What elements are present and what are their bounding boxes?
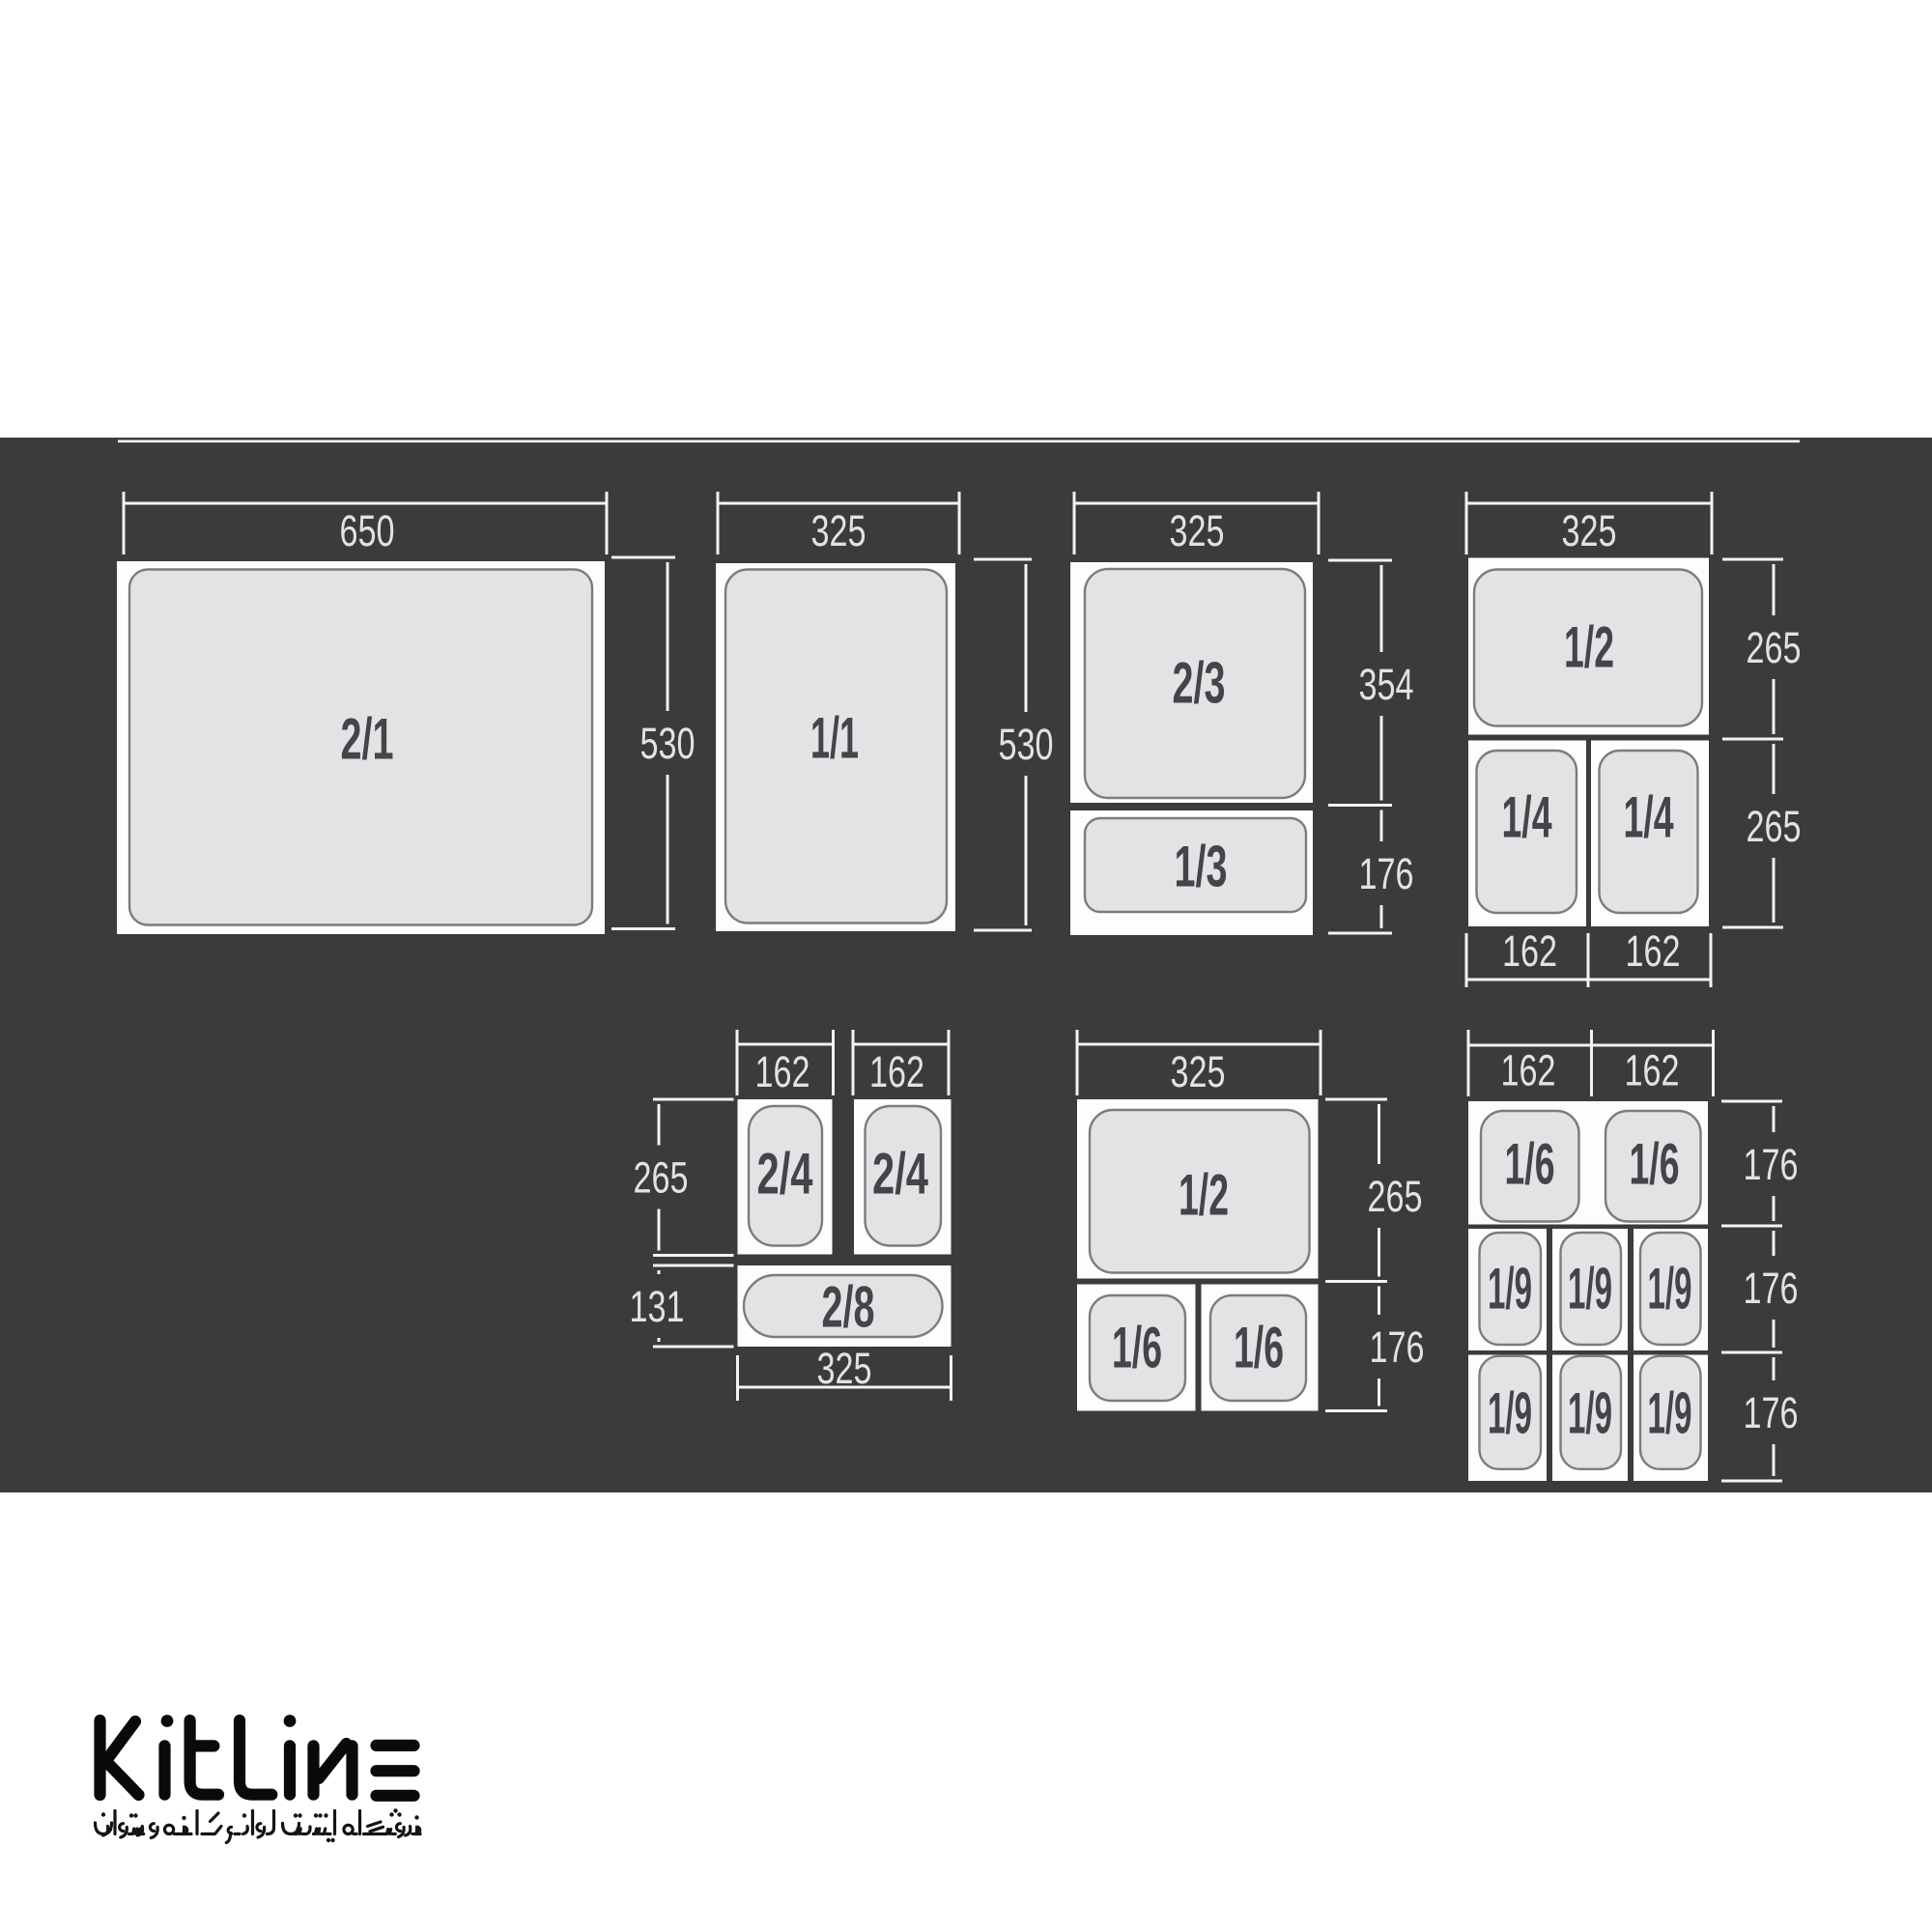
svg-text:1/1: 1/1 [810,706,859,771]
svg-text:1/9: 1/9 [1568,1257,1612,1321]
svg-text:325: 325 [1562,506,1617,555]
svg-text:1/9: 1/9 [1488,1381,1532,1446]
svg-text:265: 265 [1747,623,1802,672]
svg-text:325: 325 [1171,1047,1226,1096]
svg-text:1/3: 1/3 [1175,835,1228,899]
svg-text:2/8: 2/8 [822,1275,875,1340]
svg-text:176: 176 [1744,1388,1799,1437]
svg-text:162: 162 [1501,1046,1556,1095]
svg-text:1/4: 1/4 [1624,785,1674,850]
svg-text:1/6: 1/6 [1112,1316,1162,1380]
svg-text:2/4: 2/4 [757,1142,813,1207]
svg-text:1/6: 1/6 [1234,1316,1284,1380]
svg-text:176: 176 [1744,1264,1799,1313]
svg-text:265: 265 [1747,802,1802,851]
svg-text:162: 162 [1626,926,1681,976]
svg-text:265: 265 [1368,1172,1423,1221]
svg-text:1/9: 1/9 [1648,1381,1692,1446]
svg-text:650: 650 [340,506,395,555]
svg-text:2/3: 2/3 [1173,651,1226,716]
svg-text:2/1: 2/1 [341,707,394,772]
svg-text:1/6: 1/6 [1505,1132,1555,1197]
svg-text:325: 325 [1170,506,1225,555]
svg-text:530: 530 [640,719,696,768]
svg-text:1/9: 1/9 [1488,1257,1532,1321]
svg-text:162: 162 [1625,1046,1680,1095]
svg-text:1/9: 1/9 [1568,1381,1612,1446]
svg-text:162: 162 [869,1047,924,1096]
svg-text:176: 176 [1744,1140,1799,1189]
svg-text:2/4: 2/4 [872,1142,928,1207]
svg-text:131: 131 [630,1282,685,1331]
svg-text:530: 530 [999,720,1054,769]
svg-text:162: 162 [755,1047,810,1096]
svg-text:176: 176 [1359,849,1414,898]
svg-text:1/6: 1/6 [1630,1132,1680,1197]
svg-text:265: 265 [634,1153,689,1203]
svg-text:162: 162 [1502,926,1557,976]
svg-text:1/2: 1/2 [1564,615,1614,680]
svg-text:325: 325 [817,1344,872,1393]
svg-text:325: 325 [811,506,867,555]
svg-text:354: 354 [1359,660,1414,709]
svg-text:1/4: 1/4 [1502,785,1552,850]
svg-text:176: 176 [1370,1322,1425,1372]
svg-text:1/2: 1/2 [1179,1163,1229,1228]
svg-text:1/9: 1/9 [1648,1257,1692,1321]
